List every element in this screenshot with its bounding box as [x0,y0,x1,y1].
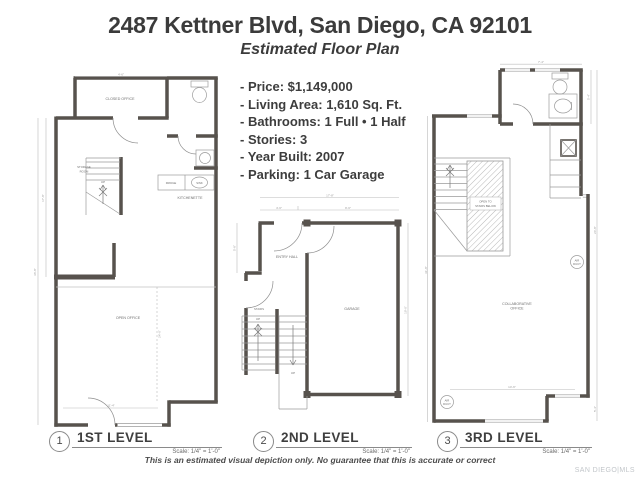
svg-text:UP: UP [291,371,295,375]
air-duct-badge: AIR DUCT [441,396,454,409]
svg-text:19'-6": 19'-6" [404,306,408,314]
svg-text:11'-4": 11'-4" [107,404,114,408]
svg-text:KITCHENETTE: KITCHENETTE [178,196,204,200]
floor-plan-level-3: OPEN TO STAIRS BELOW AIR DUCT AIR DUCT C… [425,60,605,440]
svg-text:14'-6": 14'-6" [508,385,516,389]
svg-text:36'-8": 36'-8" [33,268,37,276]
level-1-underline [72,447,222,448]
svg-text:17'-8": 17'-8" [41,194,45,202]
level2-walls [245,220,402,399]
level1-room-dividers [56,287,216,402]
level-1-number-badge: 1 [49,431,70,452]
svg-text:ENTRY HALL: ENTRY HALL [276,255,298,259]
svg-text:STAIRS: STAIRS [254,307,264,311]
detail-bathrooms: - Bathrooms: 1 Full • 1 Half [240,113,406,131]
detail-stories: - Stories: 3 [240,131,406,149]
level-3-number-badge: 3 [437,431,458,452]
svg-text:OPEN OFFICE: OPEN OFFICE [116,316,141,320]
level-2-underline [276,447,412,448]
svg-text:CLOSED OFFICE: CLOSED OFFICE [106,97,136,101]
svg-text:SINK: SINK [196,181,203,185]
disclaimer-text: This is an estimated visual depiction on… [0,455,640,465]
svg-text:UP: UP [256,317,260,321]
level2-dimension-lines [237,198,408,397]
utility-cabinet [550,124,581,198]
detail-parking: - Parking: 1 Car Garage [240,166,406,184]
bath-sink-icon [196,150,214,166]
level3-walls [432,69,590,423]
page-title: 2487 Kettner Blvd, San Diego, CA 92101 [0,12,640,39]
level2-stairs [242,316,307,409]
level3-bath-door [513,104,533,124]
level1-room-labels: CLOSED OFFICE STORAGE ROOM KITCHENETTE F… [77,97,203,320]
mls-watermark: SAN DIEGO|MLS [575,467,635,474]
svg-text:GARAGE: GARAGE [344,307,360,311]
svg-text:5'-4": 5'-4" [587,94,591,100]
svg-text:5'-8": 5'-8" [233,245,237,251]
svg-text:ROOM: ROOM [80,170,89,174]
page-subtitle: Estimated Floor Plan [0,41,640,59]
svg-text:FRIDGE: FRIDGE [166,181,177,185]
level1-walls [54,78,218,427]
svg-text:9'-6": 9'-6" [345,206,351,210]
detail-year-built: - Year Built: 2007 [240,148,406,166]
svg-text:COLLABORATIVE: COLLABORATIVE [502,302,532,306]
svg-text:STORAGE: STORAGE [77,165,91,169]
svg-text:STAIRS BELOW: STAIRS BELOW [475,204,496,208]
svg-text:7'-4": 7'-4" [538,60,544,64]
svg-text:DUCT: DUCT [443,402,451,406]
level1-window [117,424,162,427]
toilet-icon [191,81,208,103]
level-3-label: 3RD LEVEL [465,430,543,445]
level-1-label: 1ST LEVEL [77,430,153,445]
open-to-below-hatch: OPEN TO STAIRS BELOW [467,161,503,251]
floor-plan-sheet: 2487 Kettner Blvd, San Diego, CA 92101 E… [0,0,640,483]
detail-price: - Price: $1,149,000 [240,78,406,96]
property-details: - Price: $1,149,000 - Living Area: 1,610… [240,78,406,183]
svg-text:24'-8": 24'-8" [593,226,597,234]
svg-text:4'-6": 4'-6" [118,72,124,76]
svg-text:DUCT: DUCT [573,262,581,266]
svg-text:UP: UP [101,180,105,184]
svg-text:OFFICE: OFFICE [510,307,524,311]
toilet-icon [552,73,568,94]
level1-doors [88,118,196,425]
svg-text:OPEN TO: OPEN TO [479,200,492,204]
level1-stairs [86,158,121,215]
vanity-sink-icon [549,94,577,118]
svg-text:24'-6": 24'-6" [158,330,162,338]
level-2-number-badge: 2 [253,431,274,452]
air-duct-badge: AIR DUCT [571,256,584,269]
level1-dimension-labels: 4'-6" 17'-8" 36'-8" 11'-4" 24'-6" [33,72,162,407]
level-2-label: 2ND LEVEL [281,430,359,445]
detail-living-area: - Living Area: 1,610 Sq. Ft. [240,96,406,114]
svg-text:17'-8": 17'-8" [326,193,334,197]
svg-text:5'-4": 5'-4" [593,406,597,412]
svg-text:31'-8": 31'-8" [424,266,428,274]
floor-plan-level-2: ENTRY HALL STAIRS UP UP GARAGE 17'-8" 4'… [232,193,417,438]
svg-text:4'-6": 4'-6" [276,206,282,210]
level-3-underline [460,447,592,448]
level3-room-labels: COLLABORATIVE OFFICE [502,302,532,311]
floor-plan-level-1: CLOSED OFFICE STORAGE ROOM KITCHENETTE F… [18,72,233,437]
